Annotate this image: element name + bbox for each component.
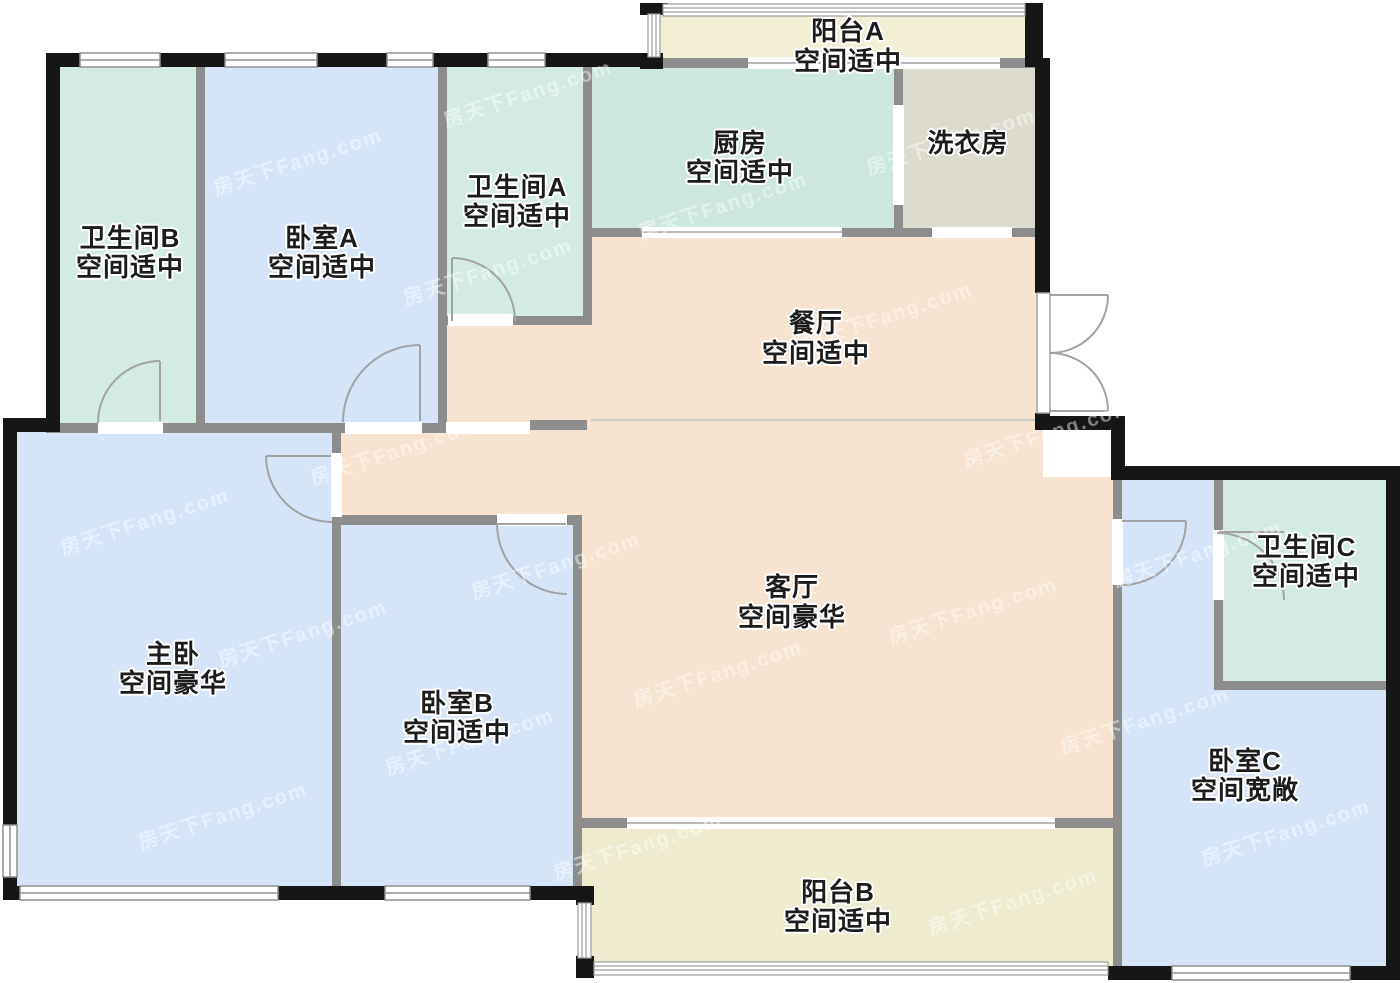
label-bathroom-c-desc: 空间适中 — [1252, 561, 1360, 591]
label-master-name: 主卧 — [146, 639, 200, 669]
label-kitchen-desc: 空间适中 — [686, 157, 794, 187]
wall-hall-stub — [530, 420, 587, 430]
label-bedroom-c-name: 卧室C — [1208, 746, 1282, 776]
label-laundry-name: 洗衣房 — [927, 128, 1008, 158]
label-bedroom-a-name: 卧室A — [285, 223, 359, 253]
wall-bathb-beda — [196, 58, 205, 427]
opening-bedroom-a-door — [345, 422, 422, 434]
label-balcony-a-name: 阳台A — [811, 16, 885, 46]
label-bathroom-a-name: 卫生间A — [467, 172, 568, 202]
floorplan-canvas: 房天下Fang.com 房天下Fang.com 房天下Fang.com 房天下F… — [0, 0, 1400, 983]
railing-balcony-a-left — [648, 14, 660, 57]
label-kitchen-name: 厨房 — [713, 128, 767, 158]
label-bathroom-b-name: 卫生间B — [80, 223, 181, 253]
floorplan: 房天下Fang.com 房天下Fang.com 房天下Fang.com 房天下F… — [0, 0, 1400, 983]
wall-right-lower — [1386, 466, 1400, 980]
label-living-desc: 空间豪华 — [738, 602, 846, 632]
entry-door-frame — [1037, 293, 1050, 413]
railing-balcony-b-left — [578, 903, 591, 958]
wall-balcony-b-block-bottom — [576, 956, 594, 978]
wall-bedc-top — [1111, 466, 1400, 480]
opening-laundry-door — [932, 227, 1012, 238]
label-bathroom-b-desc: 空间适中 — [76, 252, 184, 282]
label-balcony-b-desc: 空间适中 — [784, 906, 892, 936]
label-bedroom-b-desc: 空间适中 — [403, 717, 511, 747]
label-balcony-a-desc: 空间适中 — [794, 46, 902, 76]
opening-bathroom-a-door — [448, 314, 513, 326]
label-bedroom-c-desc: 空间宽敞 — [1191, 775, 1299, 805]
label-balcony-b-name: 阳台B — [801, 877, 875, 907]
wall-left-upper — [46, 53, 60, 425]
wall-balcony-a-corner-right — [1025, 3, 1043, 67]
label-living-name: 客厅 — [765, 572, 819, 602]
wall-balcony-b-block-top — [576, 886, 594, 905]
label-bathroom-c-name: 卫生间C — [1256, 532, 1357, 562]
label-master-desc: 空间豪华 — [119, 668, 227, 698]
wall-batha-kitchen — [583, 58, 592, 325]
opening-bathroom-b-door — [98, 422, 163, 434]
label-bathroom-a-desc: 空间适中 — [463, 201, 571, 231]
label-dining-name: 餐厅 — [789, 308, 843, 338]
entry-door-arc-bottom — [1050, 353, 1108, 411]
wall-right-upper — [1035, 58, 1050, 293]
label-bedroom-b-name: 卧室B — [420, 688, 494, 718]
label-bedroom-a-desc: 空间适中 — [268, 252, 376, 282]
wall-bathc-bottom — [1214, 681, 1400, 690]
label-dining-desc: 空间适中 — [762, 338, 870, 368]
railing-balcony-a-top — [663, 4, 1025, 16]
railing-balcony-b-bottom — [594, 962, 1108, 975]
entry-door-arc-top — [1050, 295, 1108, 353]
